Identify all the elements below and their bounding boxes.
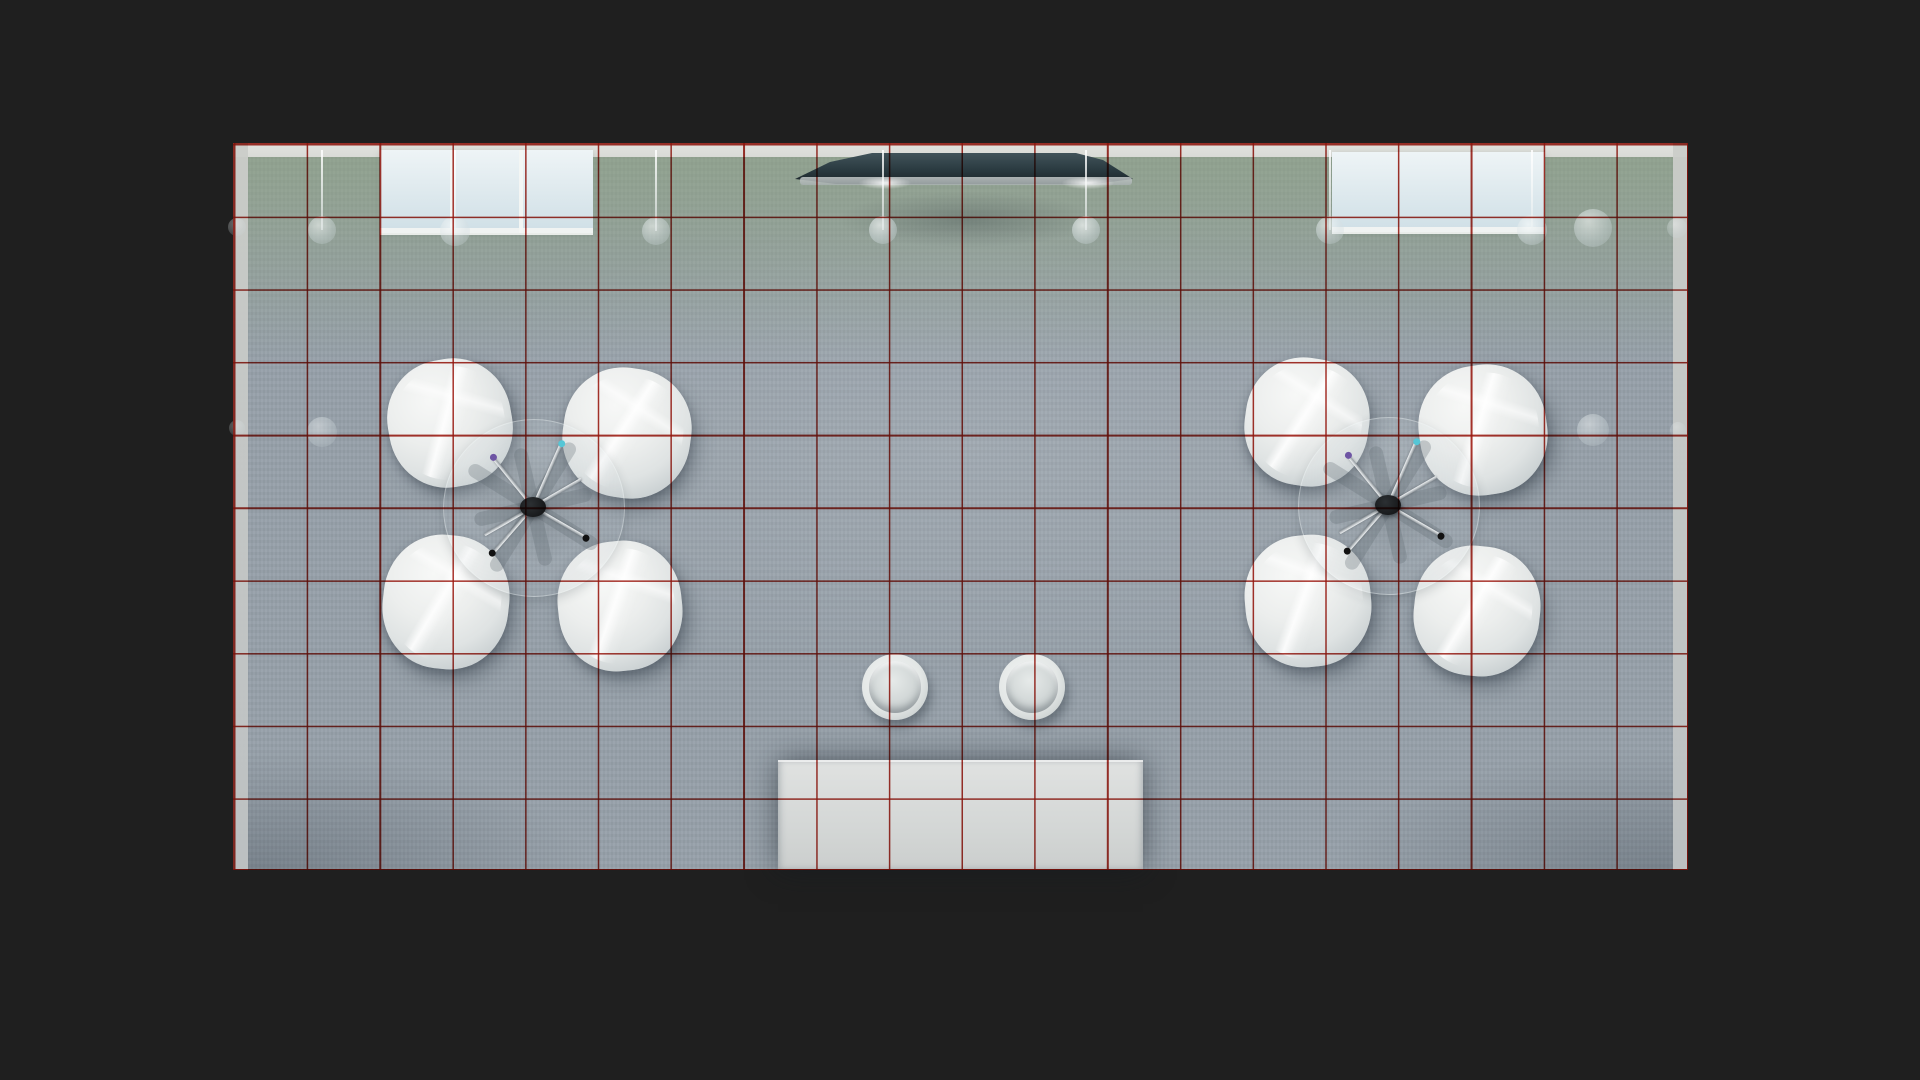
ceiling-lamp — [1577, 414, 1609, 446]
ceiling-lamp — [1667, 218, 1687, 238]
ceiling-lamp — [642, 217, 670, 245]
round-stool — [999, 654, 1065, 720]
table-base-hub — [520, 497, 546, 517]
right-wall-strip — [1673, 143, 1688, 870]
left-wall-strip — [233, 143, 248, 870]
render-viewport — [0, 0, 1920, 1080]
round-stool — [862, 654, 928, 720]
ceiling-lamp — [1517, 215, 1547, 245]
ceiling-lamp — [1072, 216, 1100, 244]
window-top-left-sill — [380, 228, 593, 235]
canopy-lamp-glow — [847, 174, 923, 192]
ceiling-lamp — [307, 417, 337, 447]
table-base-hub — [1375, 495, 1401, 515]
canopy-lamp-glow — [1050, 174, 1126, 192]
ceiling-lamp — [869, 216, 897, 244]
ceiling-lamp — [228, 218, 246, 236]
window-top-left — [380, 150, 593, 233]
window-top-right-sill — [1332, 227, 1545, 234]
stool-seat-inner — [869, 661, 920, 712]
ceiling-lamp — [440, 216, 470, 246]
ceiling-lamp — [1670, 422, 1686, 438]
ceiling-lamp — [308, 216, 336, 244]
stool-seat-inner — [1006, 661, 1057, 712]
service-counter — [778, 760, 1143, 870]
ceiling-lamp — [1316, 216, 1344, 244]
window-top-right — [1332, 152, 1545, 232]
ceiling-lamp — [229, 420, 245, 436]
ceiling-lamp — [1574, 209, 1612, 247]
window-top-left-mullion — [519, 150, 523, 233]
